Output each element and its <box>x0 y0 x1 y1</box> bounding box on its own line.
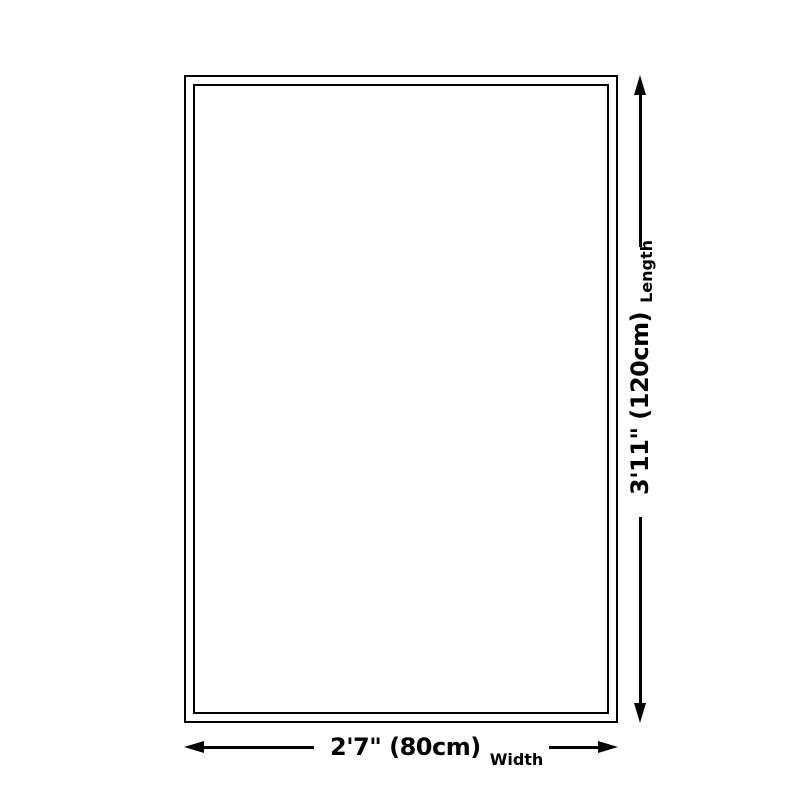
width-dimension-line-right <box>549 746 598 749</box>
length-value: 3'11" (120cm) <box>626 312 654 495</box>
dimension-diagram: 3'11" (120cm) Length 2'7" (80cm) Width <box>0 0 800 800</box>
length-dimension-line-lower <box>639 517 642 703</box>
width-dimension: 2'7" (80cm) Width <box>184 722 618 772</box>
length-label-rotated: 3'11" (120cm) Length <box>615 247 665 517</box>
rug-outer-border <box>184 75 618 723</box>
arrow-right-icon <box>598 741 618 753</box>
width-dimension-line-left <box>204 746 314 749</box>
arrow-left-icon <box>184 741 204 753</box>
length-dimension: 3'11" (120cm) Length <box>615 75 665 723</box>
length-dimension-line-upper <box>639 95 642 247</box>
arrow-up-icon <box>634 75 646 95</box>
width-label: Width <box>490 750 544 769</box>
rug-inner-border <box>193 84 609 714</box>
width-value: 2'7" (80cm) <box>330 733 481 761</box>
width-label-group: 2'7" (80cm) Width <box>314 733 549 761</box>
length-label-group: 3'11" (120cm) Length <box>615 247 665 517</box>
length-label: Length <box>637 240 656 303</box>
arrow-down-icon <box>634 703 646 723</box>
